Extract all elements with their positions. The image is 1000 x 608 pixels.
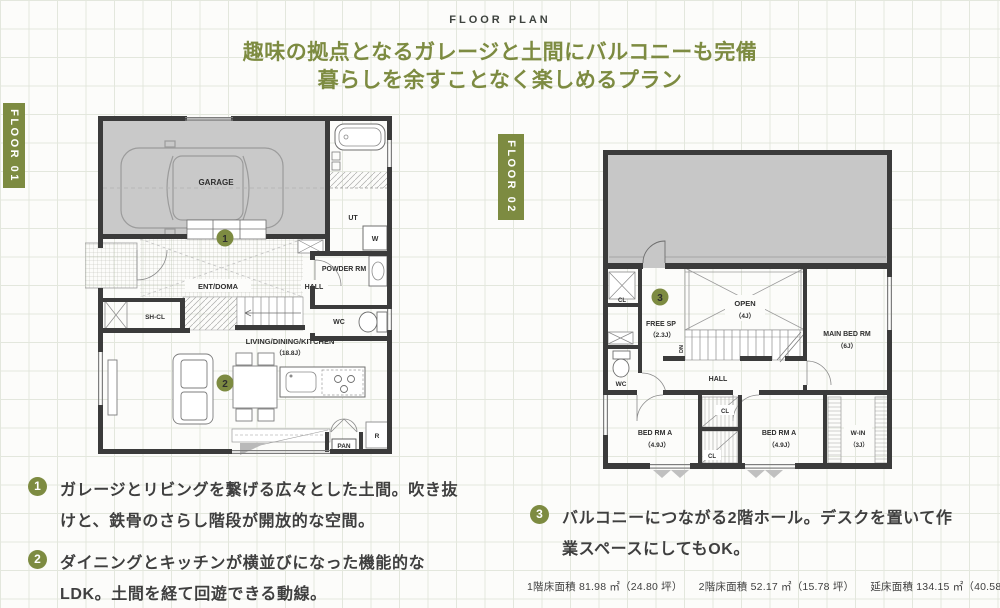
note-1-text: ガレージとリビングを繋げる広々とした土間。吹き抜 けと、鉄骨のさらし階段が開放的… xyxy=(60,475,458,537)
bed-a2-label: BED RM A xyxy=(762,430,796,437)
powder-room-label: POWDER RM xyxy=(322,266,367,273)
floor1-plan: GARAGE UT W POWDER RM xyxy=(85,108,415,468)
window-awning-marks xyxy=(653,470,783,478)
sh-cl-label: SH-CL xyxy=(145,314,165,321)
floor1-area: 1階床面積 81.98 ㎡（24.80 坪） xyxy=(527,581,683,593)
dn-label: DN xyxy=(679,345,685,353)
entrance-porch xyxy=(85,243,137,288)
bed-a2-size-label: （4.9J） xyxy=(768,441,794,449)
closet-top-left xyxy=(609,272,635,299)
walk-in-label: W-IN xyxy=(851,430,866,437)
open-label: OPEN xyxy=(734,299,755,308)
page-title-line2: 暮らしを余すことなく楽しめるプラン xyxy=(0,64,1000,94)
doma-ramp xyxy=(183,297,237,330)
total-area: 延床面積 134.15 ㎡（40.58 坪） xyxy=(870,581,1000,593)
note-1-line2: けと、鉄骨のさらし階段が開放的な空間。 xyxy=(60,506,458,537)
note-2-line1: ダイニングとキッチンが横並びになった機能的な xyxy=(60,548,425,579)
cl-mid2-label: CL xyxy=(708,454,716,460)
garage-label: GARAGE xyxy=(198,178,234,187)
shoe-closet xyxy=(105,301,127,329)
ent-doma-label: ENT/DOMA xyxy=(198,282,239,291)
main-bed-door-arc xyxy=(807,361,831,385)
pantry: PAN xyxy=(325,419,363,452)
tv-board xyxy=(108,360,117,415)
toilet2-icon xyxy=(613,351,630,377)
open-size-label: （4J） xyxy=(735,312,755,320)
page-eyebrow: FLOOR PLAN xyxy=(0,14,1000,26)
marker-1: 1 xyxy=(217,230,234,247)
floor2-banner-label: FLOOR 02 xyxy=(505,140,517,214)
bed1-door-arc xyxy=(637,395,663,421)
free-sp-size-label: （2.3J） xyxy=(649,331,675,339)
bed-a1-size-label: （4.9J） xyxy=(644,441,670,449)
floor1-banner-label: FLOOR 01 xyxy=(8,109,20,183)
note-3: 3 バルコニーにつながる2階ホール。デスクを置いて作 業スペースにしてもOK。 xyxy=(530,503,953,565)
walk-in-size-label: （3J） xyxy=(850,441,869,449)
cl-mid1-label: CL xyxy=(721,409,729,415)
note-2-text: ダイニングとキッチンが横並びになった機能的な LDK。土間を経て回遊できる動線。 xyxy=(60,548,425,608)
note-1: 1 ガレージとリビングを繋げる広々とした土間。吹き抜 けと、鉄骨のさらし階段が開… xyxy=(28,475,458,537)
fridge-label: R xyxy=(375,433,380,440)
marker-2: 2 xyxy=(217,375,234,392)
fridge: R xyxy=(366,422,388,448)
floor2-area: 2階床面積 52.17 ㎡（15.78 坪） xyxy=(699,581,855,593)
washer-icon: W xyxy=(363,226,387,250)
bathtub-icon xyxy=(335,124,385,150)
washbasin-icon xyxy=(369,256,387,286)
note-2-line2: LDK。土間を経て回遊できる動線。 xyxy=(60,579,425,608)
closet-shaft xyxy=(608,332,633,344)
note-3-text: バルコニーにつながる2階ホール。デスクを置いて作 業スペースにしてもOK。 xyxy=(562,503,953,565)
bath-fixtures xyxy=(332,152,340,170)
floor-area-summary: 1階床面積 81.98 ㎡（24.80 坪） 2階床面積 52.17 ㎡（15.… xyxy=(527,579,1000,594)
svg-text:1: 1 xyxy=(222,234,228,245)
floor-plan-page: FLOOR PLAN 趣味の拠点となるガレージと土間にバルコニーも完備 暮らしを… xyxy=(0,0,1000,608)
ut-label: UT xyxy=(348,215,358,222)
sofa-icon xyxy=(173,354,213,424)
floor2-plan: CL WC FREE SP （2.3J） OPEN （4J） xyxy=(595,145,905,485)
svg-text:W: W xyxy=(372,236,379,243)
note-1-line1: ガレージとリビングを繋げる広々とした土間。吹き抜 xyxy=(60,475,458,506)
wc2-door-arc xyxy=(642,373,666,393)
floor2-banner: FLOOR 02 xyxy=(498,134,524,220)
floor1-banner: FLOOR 01 xyxy=(3,103,25,188)
wc1-label: WC xyxy=(333,319,345,326)
bath-hatch xyxy=(330,172,387,188)
toilet1-icon xyxy=(359,312,387,332)
note-1-marker: 1 xyxy=(28,477,47,496)
note-2: 2 ダイニングとキッチンが横並びになった機能的な LDK。土間を経て回遊できる動… xyxy=(28,548,425,608)
page-title-line1: 趣味の拠点となるガレージと土間にバルコニーも完備 xyxy=(0,36,1000,66)
main-bed-size-label: （6J） xyxy=(837,342,857,350)
kitchen-counter-icon xyxy=(280,367,365,397)
pan-label: PAN xyxy=(337,443,351,450)
svg-text:2: 2 xyxy=(222,379,228,390)
note-3-line1: バルコニーにつながる2階ホール。デスクを置いて作 xyxy=(562,503,953,534)
dining-table-icon xyxy=(233,353,277,421)
svg-text:3: 3 xyxy=(657,293,663,304)
ldk-size-label: （18.8J） xyxy=(275,349,304,357)
free-sp-label: FREE SP xyxy=(646,321,676,328)
note-2-marker: 2 xyxy=(28,550,47,569)
marker-3: 3 xyxy=(652,289,669,306)
note-3-line2: 業スペースにしてもOK。 xyxy=(562,534,953,565)
bed-a1-label: BED RM A xyxy=(638,430,672,437)
hall2-label: HALL xyxy=(709,376,728,383)
main-bed-label: MAIN BED RM xyxy=(823,331,871,338)
note-3-marker: 3 xyxy=(530,505,549,524)
wc2-label: WC xyxy=(616,381,627,388)
